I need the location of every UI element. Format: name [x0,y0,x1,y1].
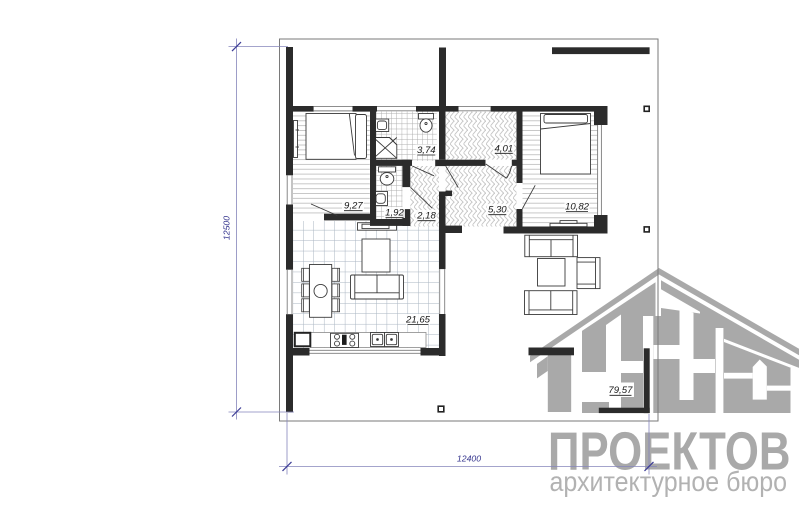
svg-text:4,01: 4,01 [494,143,513,154]
svg-text:21,65: 21,65 [405,315,431,326]
svg-text:1,92: 1,92 [385,208,404,219]
svg-text:архитектурное бюро: архитектурное бюро [550,466,788,497]
svg-text:2,18: 2,18 [416,211,436,222]
svg-text:3,74: 3,74 [417,145,436,156]
svg-text:9,27: 9,27 [344,201,363,212]
svg-text:5,30: 5,30 [488,205,507,216]
svg-text:79,57: 79,57 [608,385,633,396]
svg-text:12400: 12400 [457,454,481,464]
svg-text:12500: 12500 [222,216,232,240]
svg-text:10,82: 10,82 [565,202,590,213]
